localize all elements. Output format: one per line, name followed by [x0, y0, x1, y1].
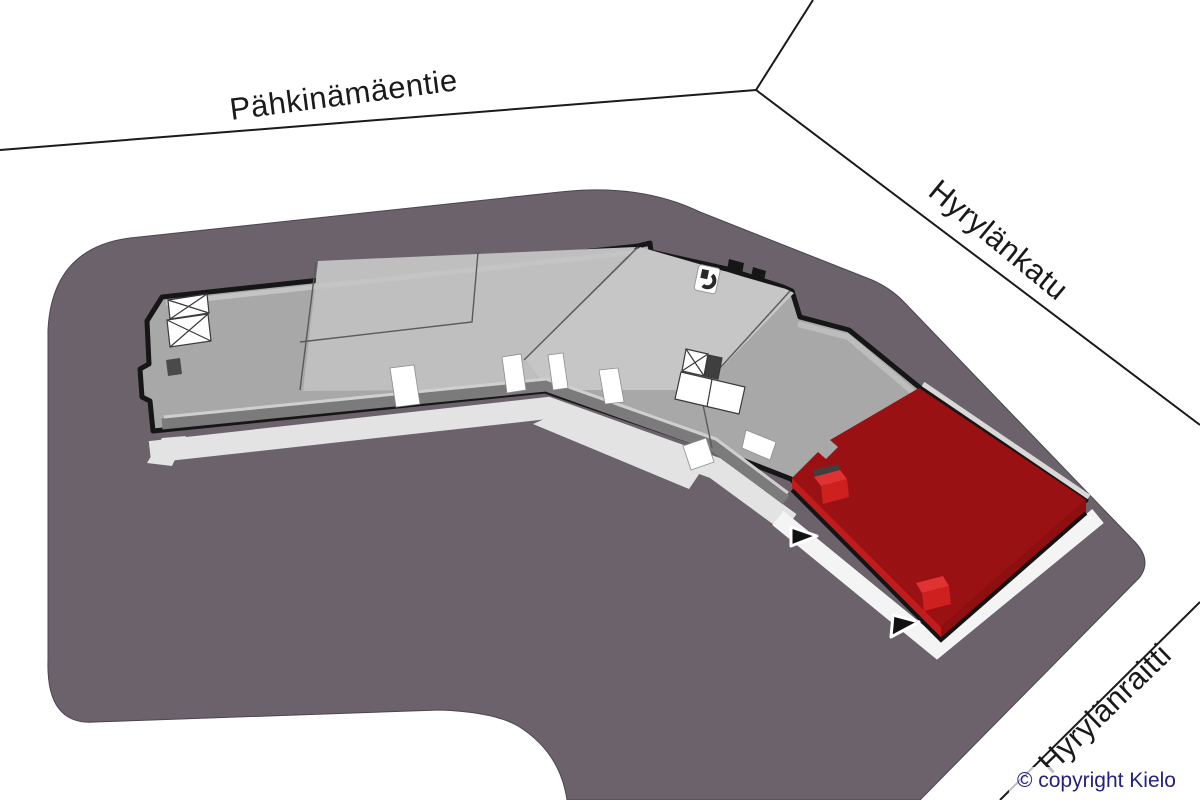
- copyright-notice: © copyright Kielo: [1009, 767, 1184, 797]
- wc-icon: [694, 264, 721, 294]
- stairs-icon: [167, 294, 211, 347]
- left-alcove: [166, 358, 182, 376]
- copyright-text: © copyright Kielo: [1017, 769, 1176, 792]
- site-plan-drawing: Pähkinämäentie Hyrylänkatu Hyrylänraitti: [0, 0, 1200, 800]
- site-plan-stage: Pähkinämäentie Hyrylänkatu Hyrylänraitti…: [0, 0, 1200, 800]
